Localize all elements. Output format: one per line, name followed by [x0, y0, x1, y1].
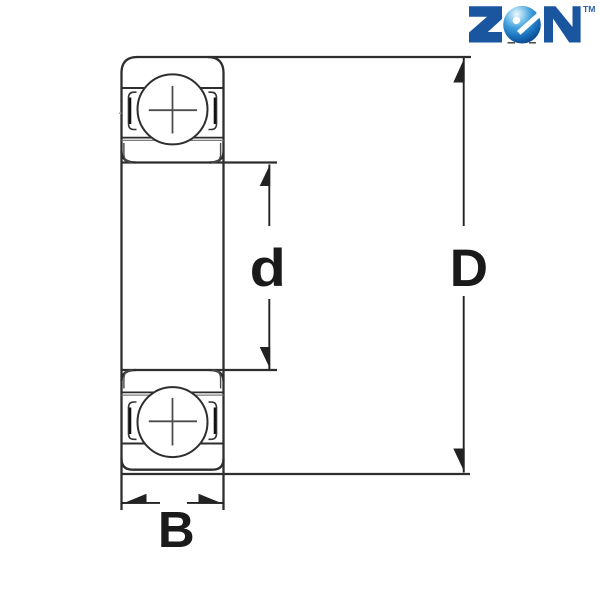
- svg-text:B: B: [158, 501, 195, 558]
- svg-text:d: d: [250, 238, 286, 297]
- svg-text:D: D: [450, 239, 488, 298]
- svg-text:TM: TM: [583, 4, 595, 14]
